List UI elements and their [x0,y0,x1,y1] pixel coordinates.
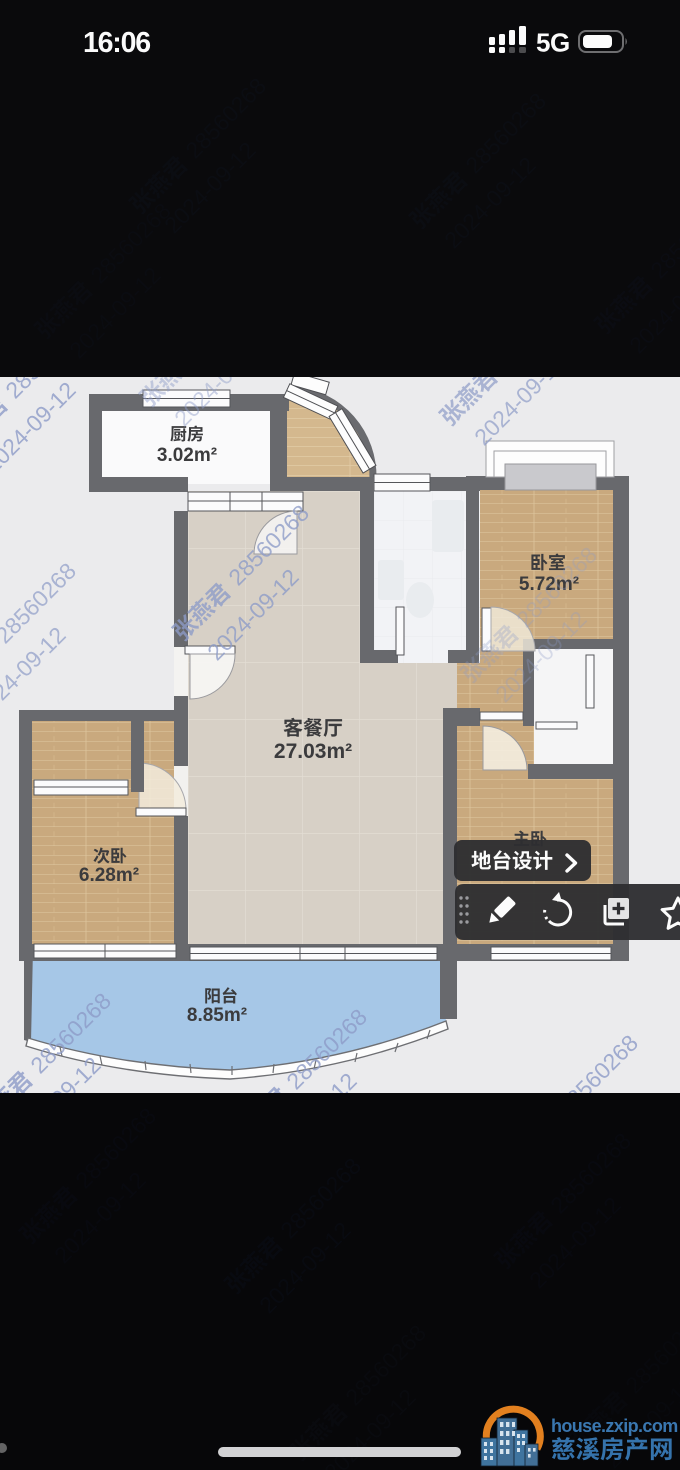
svg-text:27.03m²: 27.03m² [274,740,352,763]
svg-text:house.zxip.com: house.zxip.com [551,1416,678,1436]
svg-text:6.28m²: 6.28m² [79,865,139,886]
svg-text:8.85m²: 8.85m² [187,1005,247,1026]
svg-text:3.02m²: 3.02m² [157,445,217,466]
svg-text:16:06: 16:06 [83,27,150,59]
svg-text:5G: 5G [536,28,570,58]
